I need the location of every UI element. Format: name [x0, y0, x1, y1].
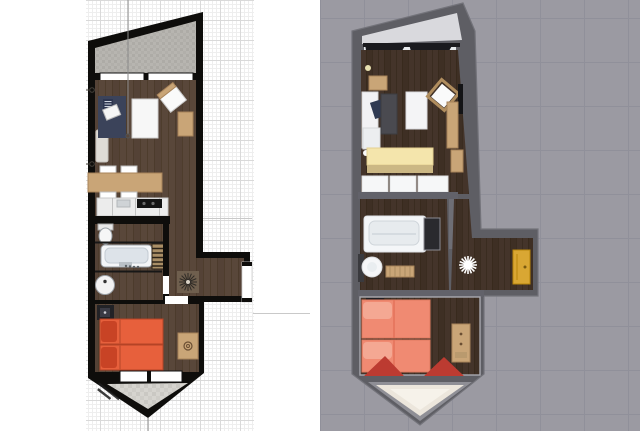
kitchen-bath-wall-2d	[88, 216, 170, 224]
entrance-door-3d	[513, 250, 530, 284]
desk-3d	[381, 94, 397, 134]
fridge-3d	[363, 128, 380, 149]
sink-3d	[362, 257, 382, 277]
toilet-2d	[98, 224, 113, 244]
towel-ladder-2d	[152, 244, 164, 269]
bedroom-door-gap-2d	[165, 296, 188, 304]
dresser-3d	[452, 324, 470, 362]
living-room-windows-2d	[95, 73, 196, 81]
kitchen-counters-3d	[362, 176, 448, 192]
shelf-right-3d	[447, 102, 458, 148]
shower-glass-3d	[424, 218, 440, 250]
kitchen-counter-2d	[97, 198, 168, 216]
bed-2-2d	[100, 345, 163, 370]
bathroom-door-gap-2d	[163, 276, 169, 294]
dining-table-3d	[367, 148, 433, 173]
lamp-3d	[365, 65, 371, 71]
sunburst-medallion-3d	[459, 256, 477, 274]
entrance-door-2d	[242, 262, 252, 302]
cooktop-2d	[137, 199, 162, 208]
bed-1-3d	[362, 300, 430, 338]
white-table-3d	[406, 92, 427, 129]
tv-3d	[458, 84, 463, 114]
bed-2-3d	[362, 340, 430, 372]
terrace-window-2d	[120, 371, 182, 382]
bath-mat-3d	[386, 266, 414, 277]
dresser-2d	[178, 333, 198, 359]
hall-bedroom-wall-3d	[358, 290, 484, 297]
bathtub-2d	[101, 245, 152, 268]
cabinet-3d	[369, 76, 387, 90]
panel-3d-plan	[320, 0, 640, 431]
bed-1-2d	[100, 319, 163, 344]
sideboard-3d	[451, 150, 463, 172]
wall-shelf-2d	[178, 112, 193, 136]
nightstand-2d	[97, 305, 114, 320]
panel-2d-plan	[0, 0, 320, 431]
bathroom-sink-2d	[96, 276, 115, 295]
bathtub-3d	[364, 216, 426, 252]
kitchen-bath-wall-3d	[358, 192, 458, 199]
white-table-2d	[132, 99, 158, 138]
floor-plan-comparison	[0, 0, 640, 431]
sunburst-medallion-2d	[177, 271, 199, 293]
